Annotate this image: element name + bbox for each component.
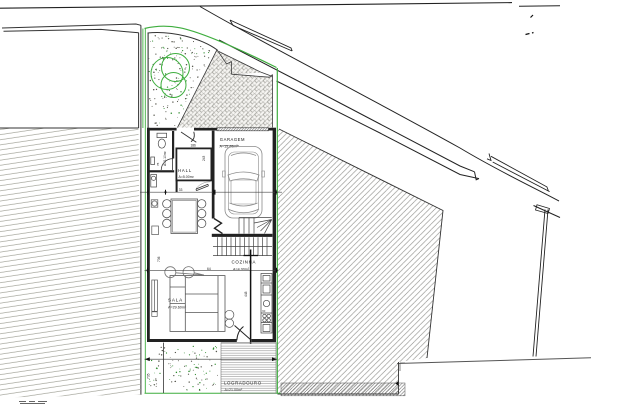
svg-text:HALL: HALL xyxy=(178,168,192,173)
svg-text:78: 78 xyxy=(156,162,160,166)
svg-text:GARAGEM: GARAGEM xyxy=(220,137,245,142)
svg-text:A=5.00m²: A=5.00m² xyxy=(179,175,195,179)
svg-text:243: 243 xyxy=(202,155,206,161)
svg-text:60: 60 xyxy=(262,309,266,313)
svg-text:186: 186 xyxy=(191,144,197,148)
svg-text:736: 736 xyxy=(157,256,161,262)
svg-text:33: 33 xyxy=(179,188,183,192)
svg-text:A=2.10m²: A=2.10m² xyxy=(163,150,167,166)
svg-text:A=29.60m²: A=29.60m² xyxy=(168,306,187,310)
svg-text:A=21.00m²: A=21.00m² xyxy=(225,388,243,392)
svg-text:448: 448 xyxy=(244,291,248,297)
svg-text:735: 735 xyxy=(147,373,151,379)
svg-text:A=4.00m²: A=4.00m² xyxy=(233,268,250,272)
svg-text:64: 64 xyxy=(207,267,211,271)
svg-text:COZINHA: COZINHA xyxy=(232,260,257,265)
svg-text:LOGRADOURO: LOGRADOURO xyxy=(224,381,262,386)
